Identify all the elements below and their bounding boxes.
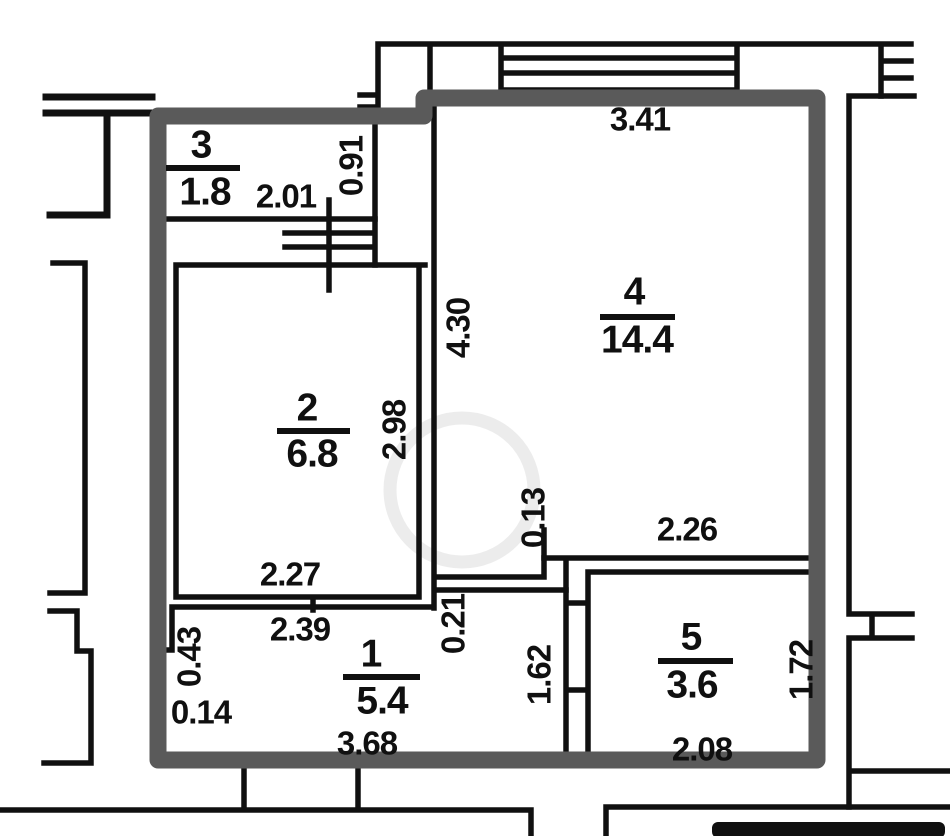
neighbor-wall-left	[44, 263, 91, 763]
floor-plan-svg: 3 1.8 2 6.8 4 14.4 1 5.4 5 3.6 3.41 2.01…	[0, 0, 950, 836]
dim-room5-width-bottom: 2.08	[672, 731, 733, 768]
room5-walls	[544, 558, 812, 757]
dim-room4-height: 4.30	[440, 298, 477, 358]
dim-hall-right-height: 1.62	[521, 644, 558, 705]
room3-number: 3	[191, 124, 212, 167]
room4-number: 4	[624, 271, 646, 314]
dim-hall-left-step-h: 0.14	[171, 694, 233, 731]
neighbor-wall-right	[849, 96, 950, 807]
dim-step-room4-room5: 0.13	[515, 487, 552, 548]
room2-area: 6.8	[286, 433, 338, 476]
room1-area: 5.4	[356, 680, 409, 723]
bottom-right-black-bar	[712, 822, 945, 836]
dim-hall-left-step-v: 0.43	[171, 626, 208, 687]
room3-area: 1.8	[179, 171, 231, 214]
dim-room4-width-top: 3.41	[610, 101, 671, 138]
room4-area: 14.4	[601, 319, 674, 362]
dim-hall-nook: 0.21	[435, 593, 472, 654]
dim-room3-width: 2.01	[256, 178, 317, 215]
floor-plan-page: 3 1.8 2 6.8 4 14.4 1 5.4 5 3.6 3.41 2.01…	[0, 0, 950, 836]
dim-room5-height: 1.72	[783, 639, 820, 700]
dim-room2-width: 2.27	[260, 556, 320, 593]
dim-room5-width-top: 2.26	[657, 511, 718, 548]
room5-number: 5	[681, 616, 702, 659]
dim-room3-height: 0.91	[333, 135, 370, 196]
dim-hall-width-bottom: 3.68	[337, 725, 398, 762]
dim-hall-width-top: 2.39	[270, 611, 331, 648]
room1-number: 1	[361, 633, 382, 676]
dim-room2-height: 2.98	[376, 399, 413, 460]
room5-area: 3.6	[666, 664, 718, 707]
room2-number: 2	[297, 387, 318, 430]
neighbor-wall-top-left	[46, 97, 152, 215]
